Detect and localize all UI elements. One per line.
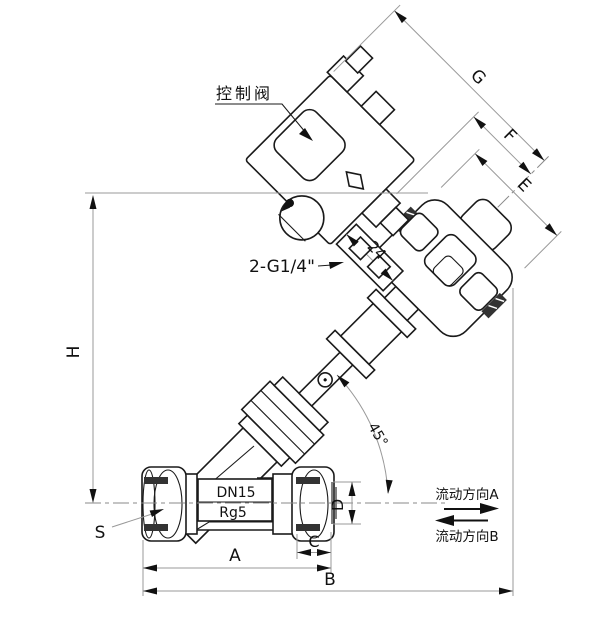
body-material-label: Rg5 xyxy=(219,505,247,521)
flow-direction-legend: 流动方向A 流动方向B xyxy=(435,487,499,545)
dimension-angle-45: 45° xyxy=(337,375,393,494)
dim-b-label: B xyxy=(324,570,336,590)
flow-direction-a-label: 流动方向A xyxy=(435,487,499,503)
flow-direction-b-label: 流动方向B xyxy=(435,529,498,545)
flow-arrow-right-icon xyxy=(480,503,499,514)
dim-h-label: H xyxy=(64,346,84,359)
dim-e-label: E xyxy=(513,175,535,197)
control-valve-label: 控制阀 xyxy=(216,84,273,103)
dim-d-label: D xyxy=(328,499,347,511)
union-s-label: S xyxy=(95,523,106,543)
body-marking-panel: DN15 Rg5 xyxy=(198,479,272,521)
drawing-page: 24 G xyxy=(0,0,600,617)
valve-stem xyxy=(299,352,353,406)
air-ports-label: 2-G1/4" xyxy=(249,257,315,277)
label-air-ports: 2-G1/4" xyxy=(249,257,344,277)
dim-angle-label: 45° xyxy=(364,420,390,450)
valve-drawing-svg: 24 G xyxy=(0,0,600,617)
flow-arrow-left-icon xyxy=(435,515,454,526)
dim-a-label: A xyxy=(229,546,241,566)
dim-f-label: F xyxy=(499,125,520,146)
body-dn-label: DN15 xyxy=(216,485,255,501)
dim-c-label: C xyxy=(308,532,319,551)
